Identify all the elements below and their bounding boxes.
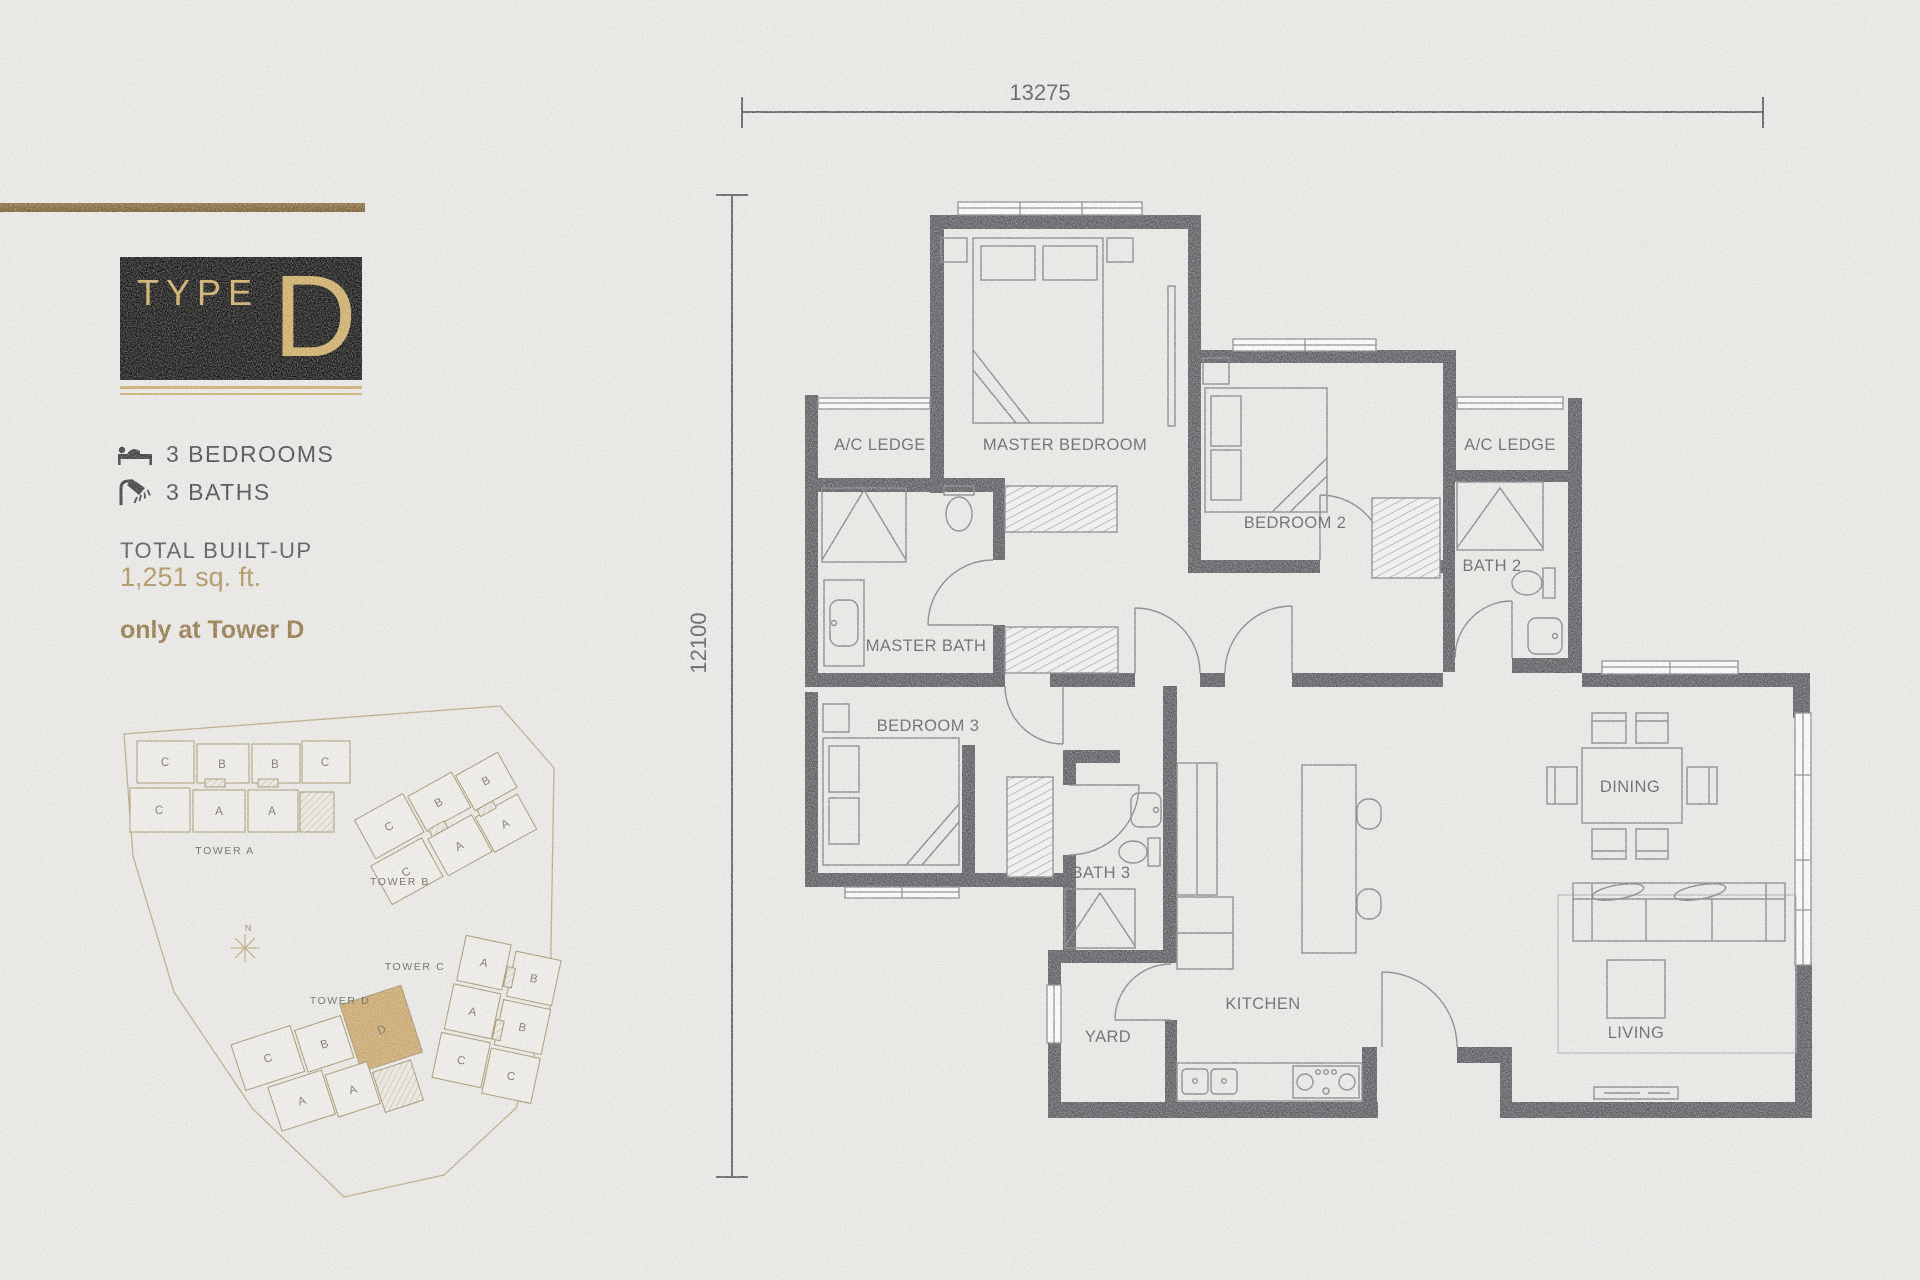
dimension-height: 12100 [686,612,711,673]
toilet-bath2 [1543,568,1555,598]
wardrobe-bedroom3 [1007,777,1053,877]
label-ac-ledge-left: A/C LEDGE [834,436,926,454]
label-master-bath: MASTER BATH [866,637,987,655]
door-yard [1115,964,1171,1020]
kitchen-island [1302,765,1356,953]
door-bedroom3 [1005,686,1063,744]
tower-d-label: TOWER D [310,995,371,1007]
label-yard: YARD [1085,1028,1131,1046]
shower-bath2 [1457,482,1543,550]
door-entry [1382,972,1457,1047]
unit-letter: A [268,806,276,818]
compass-label: N [245,923,252,933]
door-bath2 [1455,601,1512,658]
label-dining: DINING [1600,778,1660,796]
label-bath3: BATH 3 [1072,864,1131,882]
unit-letter: B [218,759,226,771]
shower-master [822,488,906,562]
tv-panel [1168,286,1175,426]
plan-graphics: C B B C C A A TOWER A C [0,0,1920,1280]
unit-letter: B [271,759,279,771]
stove [1293,1066,1359,1098]
label-living: LIVING [1608,1024,1665,1042]
wardrobe-master-2 [1005,627,1118,673]
unit-letter: C [161,757,169,769]
label-master-bedroom: MASTER BEDROOM [983,436,1147,454]
living-furniture [1558,881,1796,1099]
tower-c-label: TOWER C [385,961,446,973]
kitchen-sink [1182,1069,1208,1094]
dimension-width: 13275 [1009,80,1070,105]
bedroom2-furniture [1203,358,1327,512]
tower-a-label: TOWER A [195,845,254,857]
label-kitchen: KITCHEN [1225,995,1300,1013]
floor-plan: A/C LEDGE MASTER BEDROOM BEDROOM 2 A/C L… [805,202,1812,1118]
label-bedroom3: BEDROOM 3 [877,717,980,735]
site-tower-d [230,985,437,1151]
rug [1558,895,1796,1053]
door-corridor-1 [1135,608,1200,673]
windows [818,202,1811,1043]
unit-letter: A [215,806,223,818]
site-tower-c [431,935,562,1104]
stool [1357,889,1381,919]
sink-bath3 [1131,793,1161,827]
label-bath2: BATH 2 [1463,557,1522,575]
toilet-bath3 [1148,838,1160,866]
kitchen-fixtures [1177,763,1381,1101]
stool [1357,799,1381,829]
unit-letter: C [155,805,163,817]
label-bedroom2: BEDROOM 2 [1244,514,1347,532]
brochure-page: TYPE D 3 BEDROOMS 3 BATHS TOTAL BUILT-UP… [0,0,1920,1280]
door-master-bath [928,560,993,625]
site-tower-a [130,741,350,832]
wardrobe-bedroom2 [1372,498,1440,578]
coffee-table [1607,960,1665,1018]
tower-b-label: TOWER B [370,876,430,888]
master-bedroom-furniture [941,238,1175,426]
compass-star-icon [231,934,259,962]
door-corridor-2 [1225,606,1292,673]
wardrobe-master-1 [1005,486,1117,532]
site-plan: C B B C C A A TOWER A C [124,706,562,1197]
door-bath3 [1069,785,1139,855]
unit-letter: C [321,757,329,769]
label-ac-ledge-right: A/C LEDGE [1464,436,1556,454]
